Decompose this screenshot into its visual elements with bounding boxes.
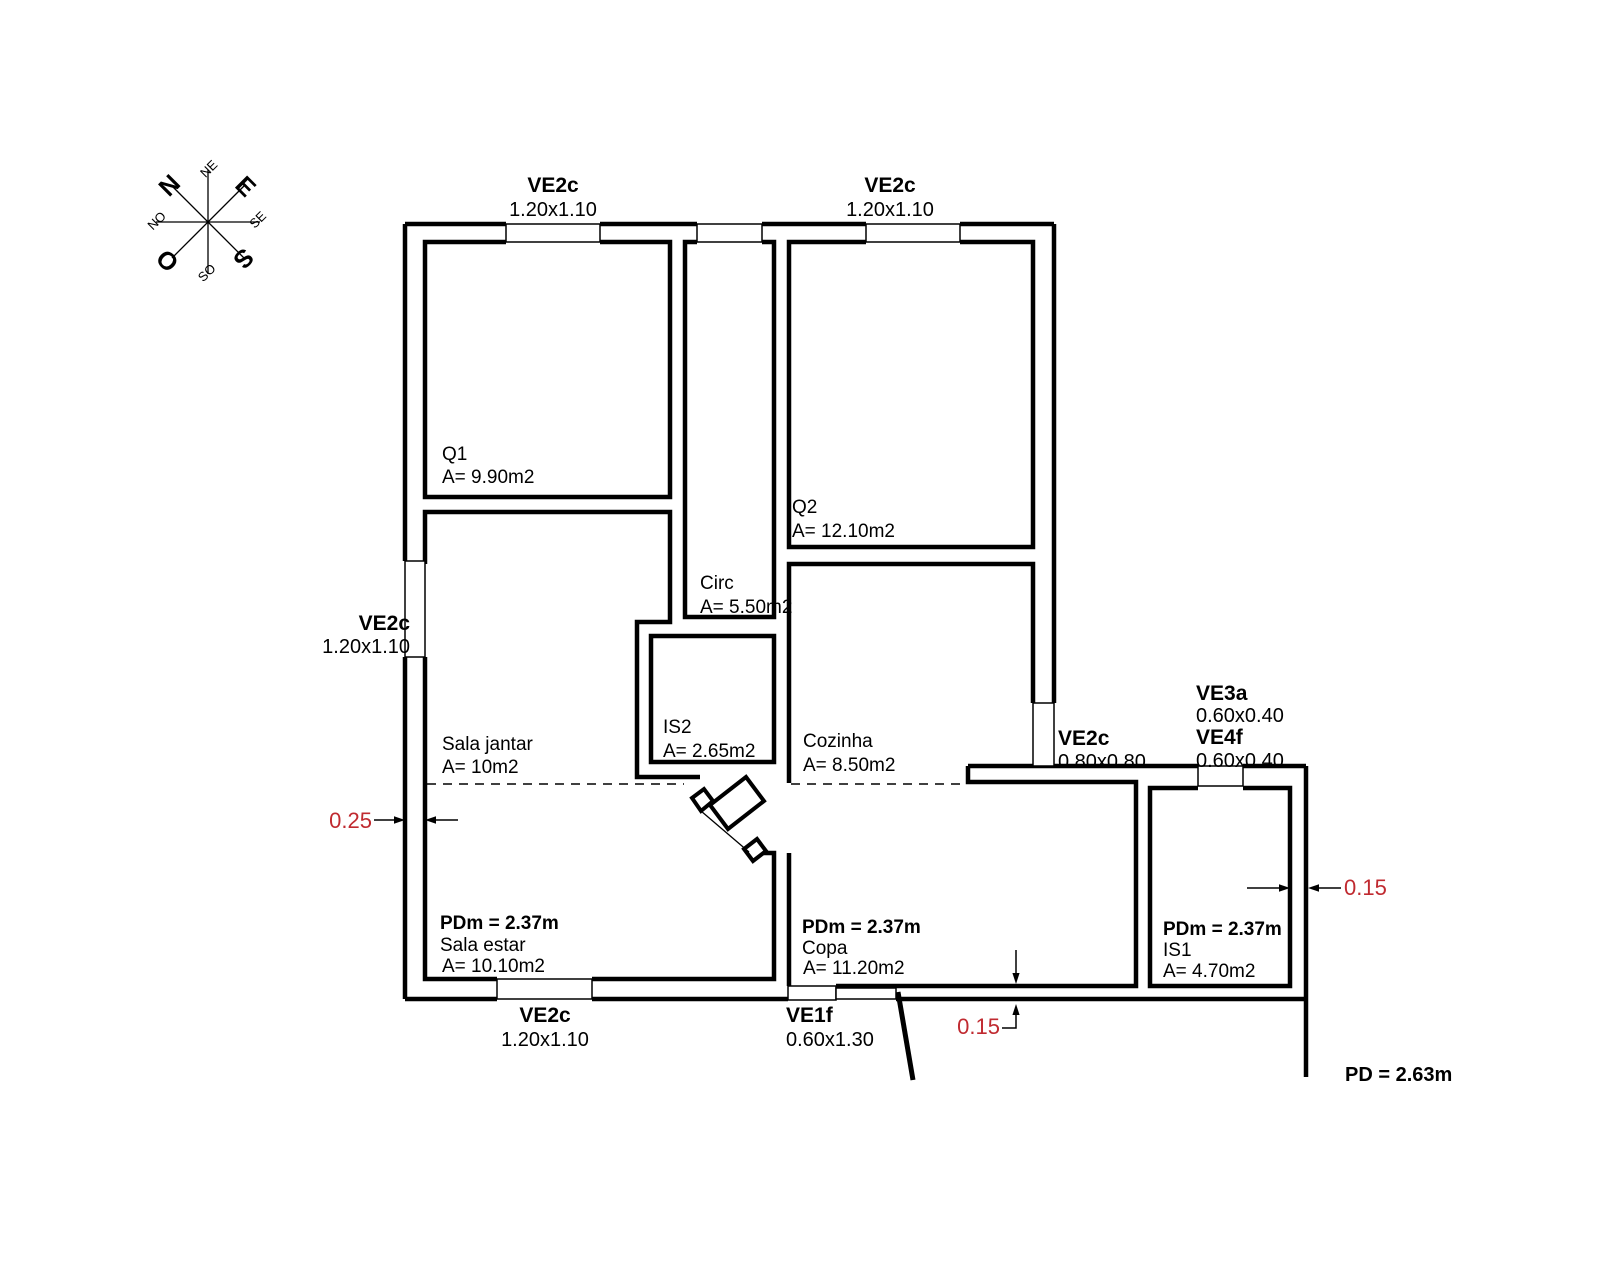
label-window-top-left-name: VE2c	[527, 174, 579, 197]
label-room-cozinha-area: A= 8.50m2	[803, 755, 895, 776]
label-room-is1-name: IS1	[1163, 940, 1192, 961]
label-window-right-name: VE2c	[1058, 727, 1110, 750]
label-room-sala-estar-name: Sala estar	[440, 935, 526, 956]
floor-plan-canvas: N E S O NE SE SO NO	[0, 0, 1600, 1280]
window-right	[1033, 703, 1054, 766]
compass-label-so: SO	[195, 261, 219, 285]
window-ve1f	[788, 986, 836, 1000]
label-room-is1-area: A= 4.70m2	[1163, 961, 1255, 982]
label-room-copa-ceiling: PDm = 2.37m	[802, 917, 921, 938]
window-top-circ	[697, 224, 762, 242]
interior-door-leaf	[710, 777, 764, 829]
label-window-ve4f-name: VE4f	[1196, 726, 1244, 749]
label-window-bottom-left-size: 1.20x1.10	[501, 1029, 589, 1051]
label-window-ve3a-size: 0.60x0.40	[1196, 705, 1284, 727]
floor-plan-drawing: N E S O NE SE SO NO	[0, 0, 1600, 1280]
label-room-copa-name: Copa	[802, 938, 848, 959]
label-room-q1-area: A= 9.90m2	[442, 467, 534, 488]
compass-label-se: SE	[246, 208, 269, 231]
label-room-q2-area: A= 12.10m2	[792, 521, 895, 542]
label-dim-right-wall: 0.15	[1344, 875, 1387, 900]
compass-label-no: NO	[144, 208, 168, 232]
label-room-sala-jantar-name: Sala jantar	[442, 734, 534, 755]
label-dim-left-wall: 0.25	[329, 808, 372, 833]
label-room-circ-name: Circ	[700, 573, 734, 594]
label-window-ve1f-name: VE1f	[786, 1004, 834, 1027]
dim-bottom-arrow-up	[1012, 1004, 1019, 1015]
dim-bottom-bracket	[1002, 1015, 1016, 1028]
label-ceiling-height: PD = 2.63m	[1345, 1064, 1452, 1086]
window-top-right	[866, 224, 960, 242]
label-window-left-name: VE2c	[359, 612, 411, 635]
compass-label-n: N	[153, 169, 186, 202]
window-top-left	[506, 224, 600, 242]
label-window-left-size: 1.20x1.10	[322, 636, 410, 658]
label-room-is2-name: IS2	[663, 717, 692, 738]
label-window-top-right-name: VE2c	[864, 174, 916, 197]
label-room-copa-area: A= 11.20m2	[803, 958, 905, 979]
label-window-ve1f-size: 0.60x1.30	[786, 1029, 874, 1051]
room-outline-circ	[685, 242, 774, 617]
label-room-q1-name: Q1	[442, 444, 467, 465]
label-window-top-right-size: 1.20x1.10	[846, 199, 934, 221]
compass-rose: N E S O NE SE SO NO	[144, 157, 269, 285]
room-outline-q2	[789, 242, 1033, 547]
compass-label-ne: NE	[197, 157, 221, 181]
compass-label-o: O	[151, 244, 185, 278]
label-room-sala-jantar-area: A= 10m2	[442, 757, 519, 778]
entry-door-leaf	[898, 992, 913, 1080]
dim-bottom-arrow-down	[1012, 973, 1019, 984]
label-room-is2-area: A= 2.65m2	[663, 741, 755, 762]
label-room-q2-name: Q2	[792, 497, 817, 518]
compass-label-e: E	[229, 171, 261, 203]
label-room-cozinha-name: Cozinha	[803, 731, 873, 752]
label-dim-bottom-wall: 0.15	[957, 1014, 1000, 1039]
label-window-bottom-left-name: VE2c	[519, 1004, 571, 1027]
label-room-sala-estar-area: A= 10.10m2	[442, 956, 545, 977]
window-bottom-left	[497, 979, 592, 999]
label-window-ve4f-size: 0.60x0.40	[1196, 750, 1284, 772]
label-room-is1-ceiling: PDm = 2.37m	[1163, 919, 1282, 940]
label-window-top-left-size: 1.20x1.10	[509, 199, 597, 221]
windows	[405, 224, 1243, 1000]
label-room-circ-area: A= 5.50m2	[700, 597, 792, 618]
label-room-sala-estar-ceiling: PDm = 2.37m	[440, 913, 559, 934]
compass-label-s: S	[227, 242, 259, 274]
entry-door-threshold	[836, 988, 896, 999]
dim-right-arrow-out	[1308, 884, 1319, 892]
label-window-right-size: 0.80x0.80	[1058, 751, 1146, 773]
label-window-ve3a-name: VE3a	[1196, 682, 1248, 705]
